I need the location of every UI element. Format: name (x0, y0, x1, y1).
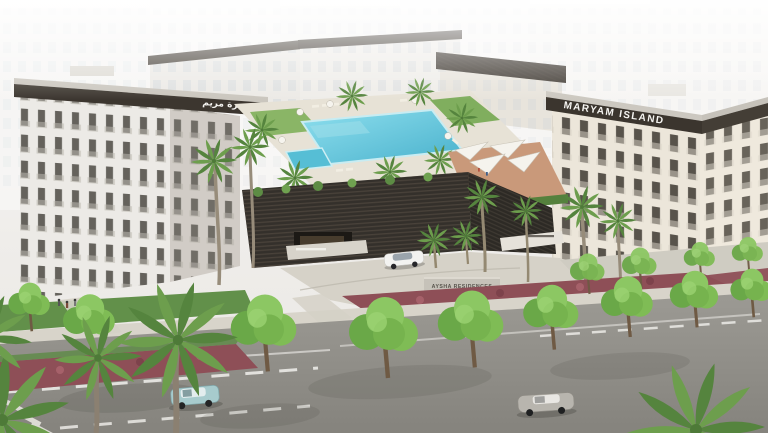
haze-overlay (0, 0, 768, 100)
aerial-render-image: جزيرة مريم MARYAM ISLAND (0, 0, 768, 433)
left-tower: جزيرة مريم (14, 66, 268, 300)
scene-aerial-render: جزيرة مريم MARYAM ISLAND (0, 0, 768, 433)
